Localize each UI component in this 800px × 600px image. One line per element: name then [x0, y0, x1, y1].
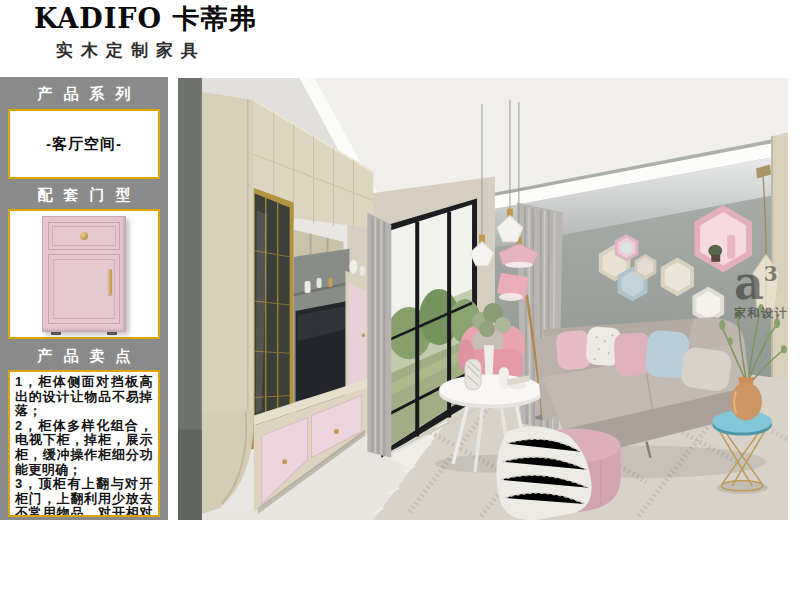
section-label-door-type: 配套门型: [0, 186, 168, 204]
sidebar: 产品系列 -客厅空间- 配套门型 产品卖点 1，柜体侧面对挡板高出的设计让物品不…: [0, 77, 168, 520]
cabinet-side-pillar: [202, 92, 254, 514]
cabinet-door-image: [42, 216, 126, 332]
door-handle-icon: [108, 269, 112, 295]
watermark-caption: 家和设计: [734, 307, 788, 319]
door-image-box: [8, 209, 160, 339]
door-lower-panel: [48, 254, 120, 324]
watermark-logo: a3: [734, 260, 788, 306]
header: KADIFO 卡蒂弗 实木定制家具: [34, 2, 256, 62]
brand-subtitle: 实木定制家具: [56, 39, 256, 62]
door-foot: [107, 332, 117, 335]
door-knob-icon: [80, 232, 88, 240]
selling-point-3: 3，顶柜有上翻与对开柜门，上翻利用少放去不常用物品，对开相对会方便，可增加利用率…: [15, 477, 153, 517]
door-foot: [51, 332, 61, 335]
pillow-beige: [680, 346, 733, 393]
vase: [349, 260, 357, 274]
selling-points-box: 1，柜体侧面对挡板高出的设计让物品不易掉落； 2，柜体多样化组合，电视下柜，掉柜…: [8, 370, 160, 517]
living-room-scene: [178, 78, 788, 520]
ottoman: [496, 426, 620, 520]
door-drawer-front: [48, 222, 120, 250]
white-vase: [499, 367, 509, 389]
selling-point-1: 1，柜体侧面对挡板高出的设计让物品不易掉落；: [15, 375, 153, 419]
living-room-photo: a3 家和设计: [178, 78, 788, 520]
pillow-pink-deep: [613, 332, 651, 376]
designer-watermark: a3 家和设计: [734, 260, 788, 319]
section-label-series: 产品系列: [0, 85, 168, 103]
patterned-vase: [465, 359, 481, 389]
section-label-selling-points: 产品卖点: [0, 347, 168, 365]
selling-point-2: 2，柜体多样化组合，电视下柜，掉柜，展示柜，缓冲操作柜细分功能更明确；: [15, 419, 153, 477]
series-value: -客厅空间-: [46, 135, 122, 154]
hex-mirror: [621, 242, 633, 254]
product-flyer-page: KADIFO 卡蒂弗 实木定制家具 产品系列 -客厅空间- 配套门型 产品卖点 …: [0, 0, 800, 600]
hexagon-white: [694, 289, 722, 321]
hexagon-cream: [663, 260, 692, 294]
series-value-box: -客厅空间-: [8, 109, 160, 179]
decor-vase: [305, 281, 311, 293]
brand-title: KADIFO 卡蒂弗: [34, 2, 256, 36]
